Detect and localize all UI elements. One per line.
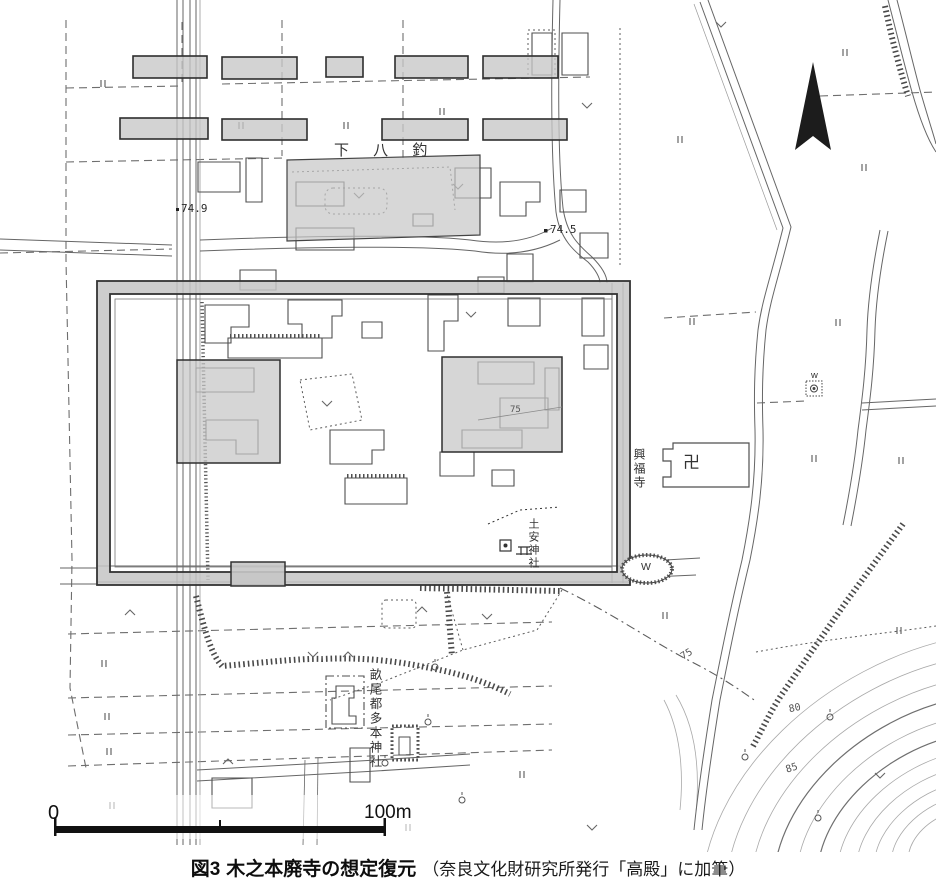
recon-hall-east: [442, 357, 562, 452]
scale-bar: [40, 795, 420, 839]
figure-caption: 図3 木之本廃寺の想定復元 （奈良文化財研究所発行「高殿」に加筆）: [0, 850, 936, 885]
contour-dashed-75: [560, 588, 757, 702]
contour-lines: [626, 546, 936, 852]
figure-source: （奈良文化財研究所発行「高殿」に加筆）: [422, 855, 745, 880]
orchard-symbols: [382, 659, 833, 821]
tsuchiyasu-shrine-symbols: [488, 507, 560, 555]
manji-temple-icon: 卍: [683, 454, 700, 471]
kofukuji-building-outline: [663, 443, 749, 487]
north-arrow-icon: [795, 62, 831, 150]
spot-height-74-9: 74.9: [181, 203, 208, 214]
map-stage: 下 八 釣 74.9 74.5 75 75 80 85 興福寺 卍 土安神社 畝…: [0, 0, 936, 852]
label-pond-w: W: [641, 562, 651, 573]
spot-height-dot-749: [176, 208, 179, 211]
figure-title: 木之本廃寺の想定復元: [226, 854, 416, 881]
spot-height-dot-745: [544, 229, 548, 233]
shimoyatsuri-recon-block: [287, 155, 480, 241]
label-uneotsutamoto-jinja: 畝尾都多本神社: [368, 668, 381, 770]
scale-label-end: 100m: [364, 803, 412, 822]
figure-page: 下 八 釣 74.9 74.5 75 75 80 85 興福寺 卍 土安神社 畝…: [0, 0, 936, 885]
recon-hall-west: [177, 360, 280, 463]
site-map-drawing: [0, 0, 936, 852]
spot-height-74-5: 74.5: [550, 224, 577, 235]
label-kofukuji: 興福寺: [633, 448, 645, 490]
south-gate: [231, 562, 285, 586]
scale-label-start: 0: [48, 803, 59, 823]
label-well-w: w: [811, 371, 818, 381]
well-symbol: [806, 381, 822, 396]
label-shimoyatsuri: 下 八 釣: [334, 143, 437, 158]
reconstructed-buildings-row1: [133, 56, 558, 79]
figure-number: 図3: [191, 854, 221, 881]
contour-label-75a: 75: [510, 406, 521, 415]
label-tsuchiyasu-jinja: 土安神社: [527, 518, 538, 570]
